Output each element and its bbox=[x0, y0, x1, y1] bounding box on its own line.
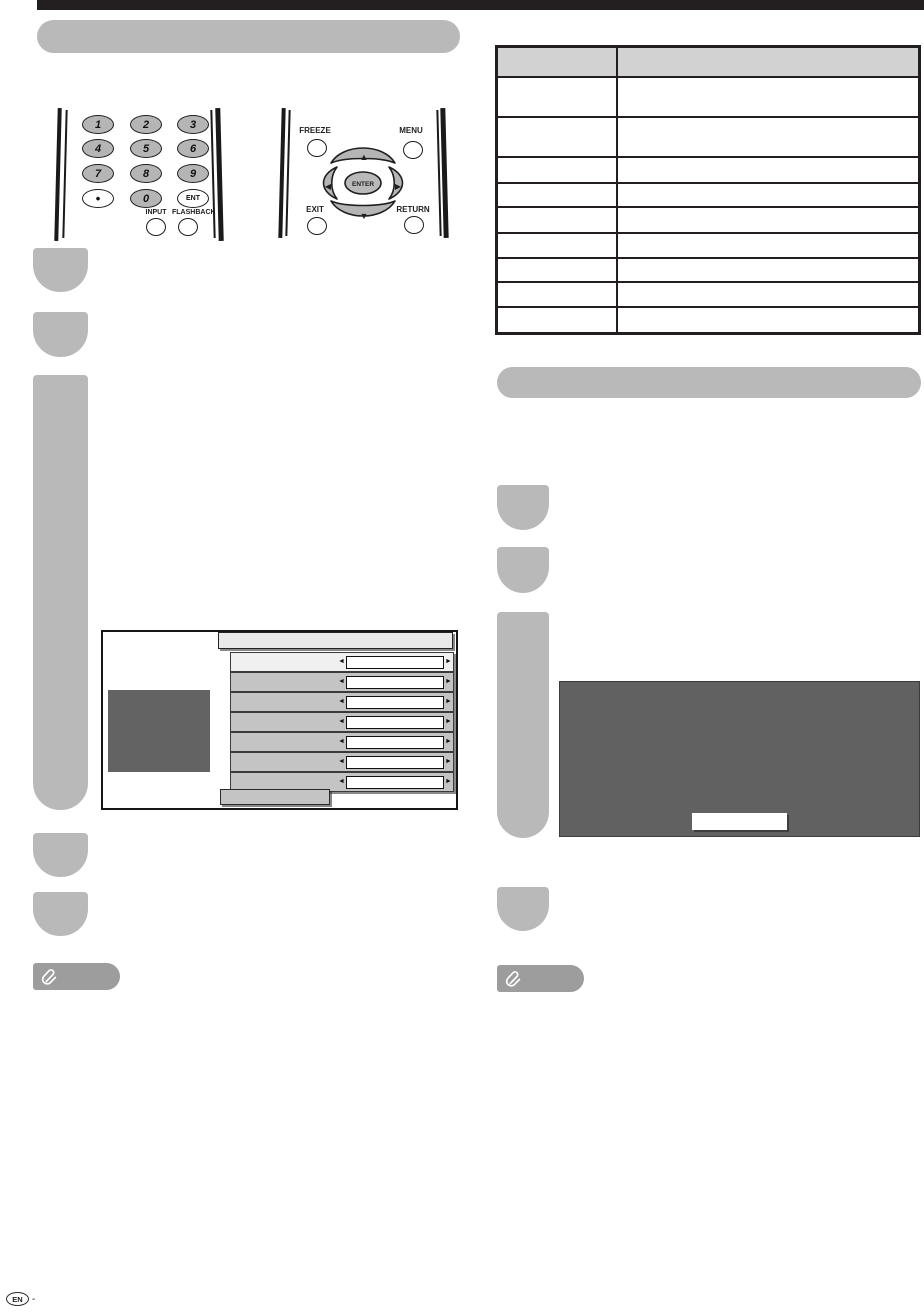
decrease-arrow-icon: ◄ bbox=[337, 733, 346, 751]
decrease-arrow-icon: ◄ bbox=[337, 693, 346, 711]
table-cell bbox=[618, 184, 918, 206]
decrease-arrow-icon: ◄ bbox=[337, 713, 346, 731]
step-badge bbox=[33, 892, 88, 936]
osd-value-box bbox=[346, 716, 444, 729]
input-button-icon bbox=[146, 218, 166, 236]
increase-arrow-icon: ► bbox=[444, 733, 453, 751]
osd-menu-title-bar bbox=[218, 632, 453, 649]
table-cell bbox=[498, 259, 616, 281]
step-badge bbox=[33, 833, 88, 877]
table-cell bbox=[498, 308, 616, 332]
osd-dialog-button bbox=[692, 813, 787, 830]
right-arrow-icon: ▶ bbox=[395, 182, 402, 191]
osd-menu-screenshot: ◄ ► ◄ ► ◄ ► ◄ ► ◄ ► bbox=[101, 630, 458, 810]
osd-value-box bbox=[346, 776, 444, 789]
osd-value-box bbox=[346, 696, 444, 709]
table-cell bbox=[498, 78, 616, 116]
step-badge bbox=[497, 485, 549, 530]
table-cell bbox=[618, 78, 918, 116]
page-footer: EN - bbox=[6, 1292, 35, 1306]
osd-value-box bbox=[346, 736, 444, 749]
key-9: 9 bbox=[177, 164, 209, 183]
osd-dialog-screenshot bbox=[559, 681, 920, 837]
down-arrow-icon: ▼ bbox=[360, 211, 369, 221]
top-rule bbox=[37, 0, 924, 10]
manual-page: 1 2 3 4 5 6 7 8 9 • 0 ENT INPUT FLASHBAC… bbox=[0, 0, 924, 1316]
table-header-cell bbox=[618, 48, 918, 76]
key-ent: ENT bbox=[177, 189, 209, 208]
increase-arrow-icon: ► bbox=[444, 653, 453, 671]
osd-value-box bbox=[346, 656, 444, 669]
table-cell bbox=[618, 118, 918, 156]
direction-pad-illustration: ENTER ▲ ▼ ◀ ▶ bbox=[275, 105, 450, 247]
increase-arrow-icon: ► bbox=[444, 773, 453, 791]
table-cell bbox=[498, 208, 616, 232]
key-1: 1 bbox=[82, 115, 114, 134]
up-arrow-icon: ▲ bbox=[360, 152, 369, 162]
step-badge bbox=[497, 612, 549, 838]
table-cell bbox=[618, 283, 918, 306]
osd-slider-row: ◄ ► bbox=[230, 692, 454, 712]
osd-slider-row: ◄ ► bbox=[230, 712, 454, 732]
paperclip-icon bbox=[40, 967, 60, 987]
enter-label: ENTER bbox=[352, 181, 374, 188]
key-2: 2 bbox=[130, 115, 162, 134]
flashback-label: FLASHBACK bbox=[172, 209, 220, 216]
table-cell bbox=[618, 234, 918, 257]
osd-reset-button bbox=[220, 789, 330, 805]
section-header-right bbox=[497, 367, 921, 398]
table-cell bbox=[618, 158, 918, 182]
key-5: 5 bbox=[130, 139, 162, 158]
osd-slider-row: ◄ ► bbox=[230, 752, 454, 772]
increase-arrow-icon: ► bbox=[444, 693, 453, 711]
decrease-arrow-icon: ◄ bbox=[337, 773, 346, 791]
table-cell bbox=[498, 118, 616, 156]
table-cell bbox=[498, 234, 616, 257]
increase-arrow-icon: ► bbox=[444, 753, 453, 771]
key-dot: • bbox=[82, 189, 114, 208]
key-7: 7 bbox=[82, 164, 114, 183]
left-arrow-icon: ◀ bbox=[325, 182, 332, 191]
osd-value-box bbox=[346, 756, 444, 769]
step-badge bbox=[33, 375, 88, 810]
increase-arrow-icon: ► bbox=[444, 673, 453, 691]
key-6: 6 bbox=[177, 139, 209, 158]
remote-edge-line bbox=[215, 108, 223, 241]
remote-edge-line bbox=[62, 110, 67, 238]
key-0: 0 bbox=[130, 189, 162, 208]
decrease-arrow-icon: ◄ bbox=[337, 653, 346, 671]
section-header-left bbox=[37, 20, 460, 53]
osd-slider-row: ◄ ► bbox=[230, 732, 454, 752]
key-3: 3 bbox=[177, 115, 209, 134]
region-badge: EN bbox=[6, 1292, 29, 1306]
reference-table bbox=[495, 45, 921, 335]
table-header-cell bbox=[498, 48, 616, 76]
note-badge bbox=[497, 965, 584, 992]
key-8: 8 bbox=[130, 164, 162, 183]
table-cell bbox=[498, 283, 616, 306]
osd-slider-row: ◄ ► bbox=[230, 652, 454, 672]
step-badge bbox=[33, 248, 88, 292]
table-cell bbox=[498, 158, 616, 182]
table-cell bbox=[618, 208, 918, 232]
increase-arrow-icon: ► bbox=[444, 713, 453, 731]
flashback-button-icon bbox=[178, 218, 198, 236]
remote-edge-line bbox=[210, 110, 215, 238]
osd-slider-row: ◄ ► bbox=[230, 672, 454, 692]
table-cell bbox=[498, 184, 616, 206]
osd-value-box bbox=[346, 676, 444, 689]
key-4: 4 bbox=[82, 139, 114, 158]
input-label: INPUT bbox=[138, 209, 174, 216]
table-cell bbox=[618, 308, 918, 332]
osd-preview-area bbox=[108, 690, 210, 772]
remote-edge-line bbox=[54, 108, 61, 241]
step-badge bbox=[497, 547, 549, 593]
decrease-arrow-icon: ◄ bbox=[337, 673, 346, 691]
decrease-arrow-icon: ◄ bbox=[337, 753, 346, 771]
note-badge bbox=[33, 963, 120, 990]
table-cell bbox=[618, 259, 918, 281]
paperclip-icon bbox=[504, 969, 524, 989]
step-badge bbox=[497, 887, 549, 931]
step-badge bbox=[33, 312, 88, 357]
footer-dash: - bbox=[32, 1294, 35, 1305]
